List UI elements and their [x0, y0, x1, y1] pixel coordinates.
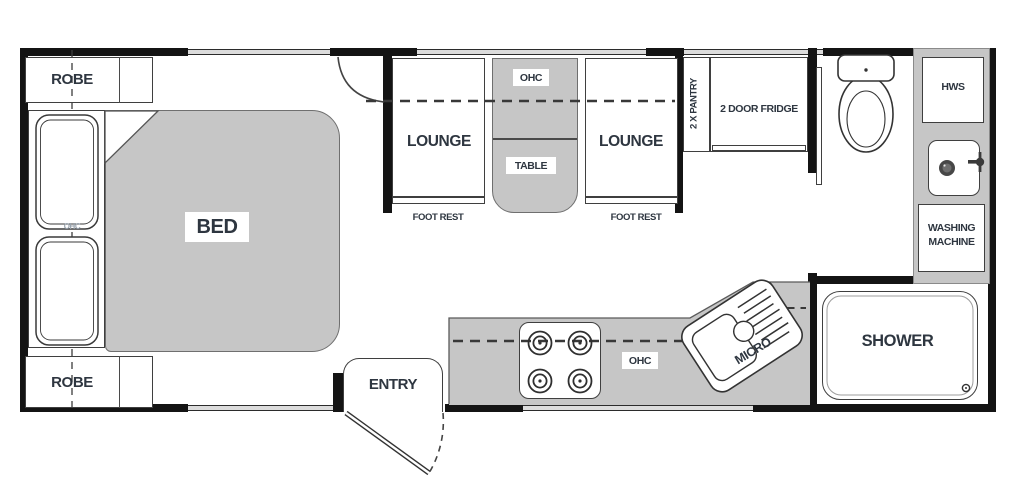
- entry-door-leaf: [346, 413, 429, 473]
- wall-bottom-post-entry: [333, 373, 343, 412]
- bathroom-door-leaf: [816, 67, 822, 185]
- washing-machine-label: WASHING MACHINE: [921, 214, 982, 258]
- lounge-left-box: [392, 58, 485, 197]
- robe-bottom-divider: [119, 356, 120, 408]
- foot-rest-right-label: FOOT REST: [596, 211, 676, 223]
- entry-label: ENTRY: [348, 374, 438, 394]
- window-top-3: [684, 49, 823, 55]
- foot-rest-left-label: FOOT REST: [398, 211, 478, 223]
- lounge-left-label: LOUNGE: [395, 131, 483, 153]
- vanity-sink-box: [928, 140, 980, 196]
- wall-top-1: [20, 48, 188, 56]
- hws-label: HWS: [922, 80, 984, 94]
- floorplan-canvas: ROBE ROBE OHC BED LOUNGE LOUNGE FOOT RES…: [0, 0, 1024, 500]
- entry-door-swing-arc: [429, 413, 443, 473]
- robe-top-divider: [119, 57, 120, 103]
- wall-bottom-2: [445, 404, 523, 412]
- wall-bottom-3: [753, 404, 996, 412]
- table-divider-line: [493, 138, 577, 140]
- lounge-right-box: [585, 58, 678, 197]
- toilet-icon: [838, 55, 894, 152]
- fridge-shelf: [712, 145, 806, 151]
- foot-rest-right-edge: [585, 197, 678, 204]
- robe-bottom-label: ROBE: [27, 369, 117, 395]
- foot-rest-left-edge: [392, 197, 485, 204]
- bed-label: BED: [185, 212, 249, 242]
- cooktop: [519, 322, 601, 399]
- bedhead-ohc-label: OHC: [55, 221, 89, 232]
- pantry-label: 2 X PANTRY: [687, 59, 702, 149]
- shower-label: SHOWER: [845, 330, 950, 352]
- window-bottom-2: [523, 405, 753, 411]
- wall-top-2: [330, 48, 417, 56]
- dinette-ohc-label: OHC: [513, 69, 549, 86]
- partition-arc: [338, 57, 384, 102]
- table-label: TABLE: [506, 157, 556, 174]
- fridge-label: 2 DOOR FRIDGE: [711, 101, 807, 116]
- window-top-2: [417, 49, 646, 55]
- wall-bed-lounge-post: [383, 48, 392, 213]
- window-top-1: [188, 49, 330, 55]
- lounge-right-label: LOUNGE: [587, 131, 675, 153]
- window-bottom-1: [188, 405, 333, 411]
- robe-top-label: ROBE: [27, 66, 117, 92]
- kitchen-ohc-label: OHC: [622, 352, 658, 369]
